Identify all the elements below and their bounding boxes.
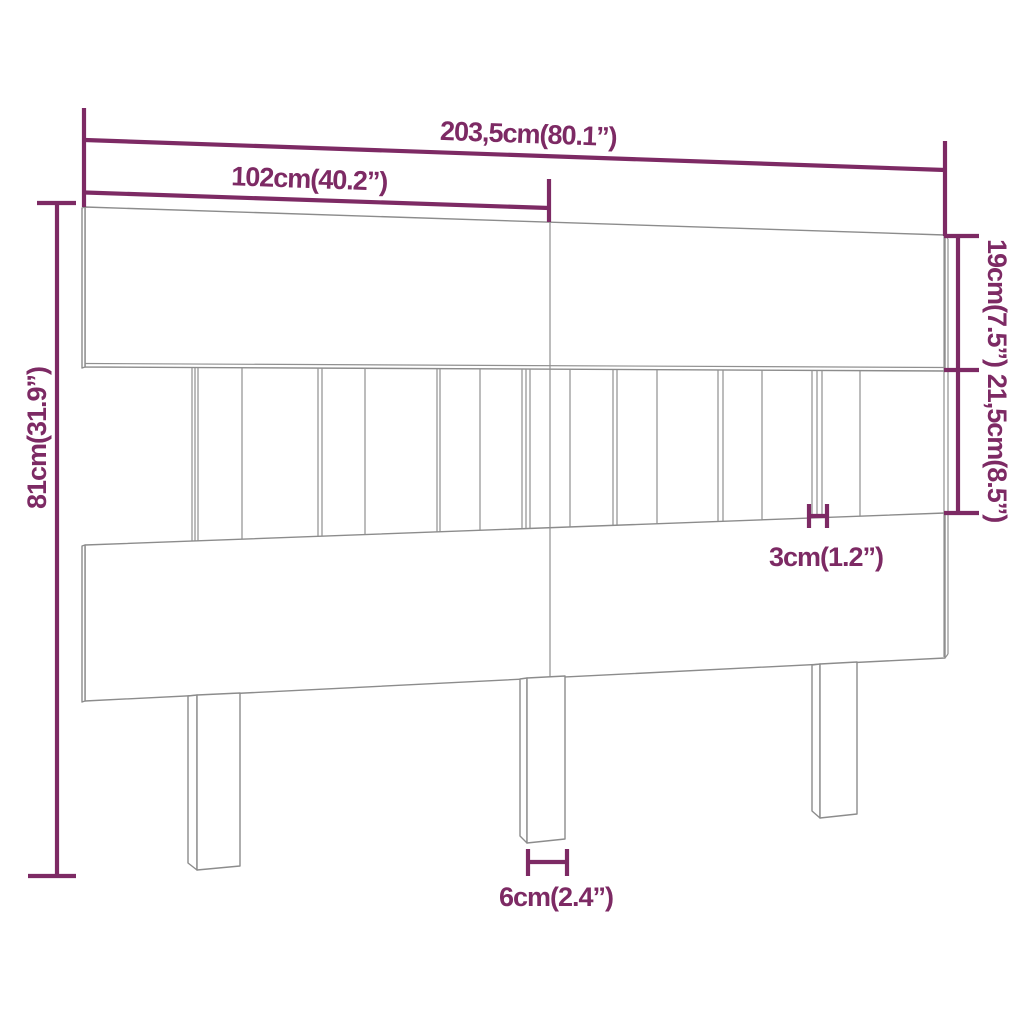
dimension-label-total-height: 81cm(31.9”) (22, 367, 52, 509)
dim-line-half-width (85, 193, 549, 209)
dimension-label-half-width: 102cm(40.2”) (231, 161, 388, 196)
lower-board-left-side-face (82, 545, 85, 702)
headboard-dimension-drawing: 203,5cm(80.1”) 102cm(40.2”) 19cm(7.5”) 2… (0, 0, 1024, 1024)
right-leg-front-face (820, 662, 857, 818)
dimension-label-total-width: 203,5cm(80.1”) (440, 116, 618, 152)
dimension-label-slat-section-height: 21,5cm(8.5”) (982, 374, 1012, 523)
dimension-leg-width: 6cm(2.4”) (499, 849, 613, 912)
center-leg (520, 676, 565, 843)
right-leg (812, 662, 857, 818)
headboard-right-edge (944, 235, 948, 658)
left-leg (188, 693, 240, 870)
headboard-slats (192, 368, 860, 541)
center-leg-front-face (527, 676, 565, 843)
center-leg-side-face (520, 678, 527, 843)
headboard-top-board (82, 207, 945, 371)
diagram-canvas: 203,5cm(80.1”) 102cm(40.2”) 19cm(7.5”) 2… (0, 0, 1024, 1024)
dimension-label-slat-width: 3cm(1.2”) (769, 542, 883, 572)
top-board-left-side-face (82, 207, 85, 368)
dimension-total-height: 81cm(31.9”) (22, 203, 76, 876)
dimension-label-top-board-height: 19cm(7.5”) (982, 239, 1012, 367)
left-leg-side-face (188, 695, 197, 870)
left-leg-front-face (197, 693, 240, 870)
dimension-right-heights: 19cm(7.5”) 21,5cm(8.5”) (944, 236, 1012, 522)
right-leg-side-face (812, 664, 820, 818)
top-board-front-face (85, 207, 945, 371)
dimension-label-leg-width: 6cm(2.4”) (499, 882, 613, 912)
